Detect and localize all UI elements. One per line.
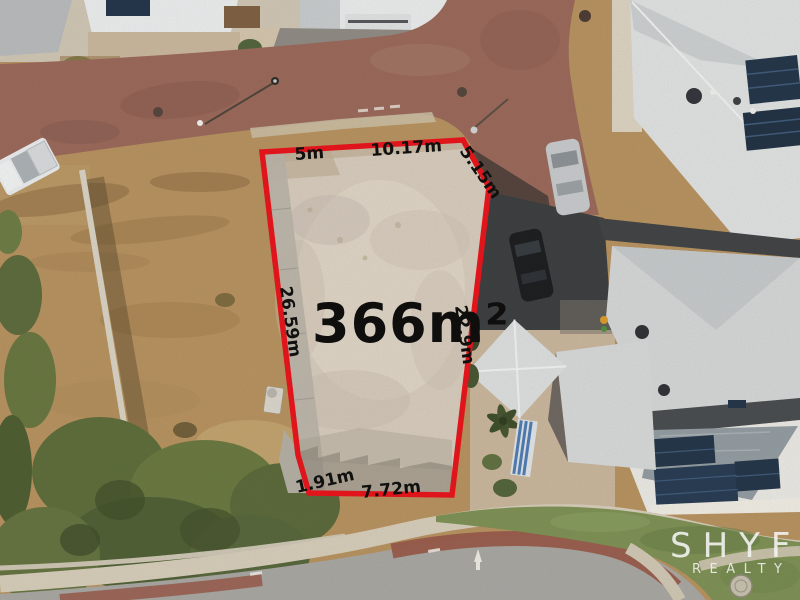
- aerial-photo: 5m 10.17m 5.15m 26.59m 22.9m 1.91m 7.72m…: [0, 0, 800, 600]
- photo-grain: [0, 0, 800, 600]
